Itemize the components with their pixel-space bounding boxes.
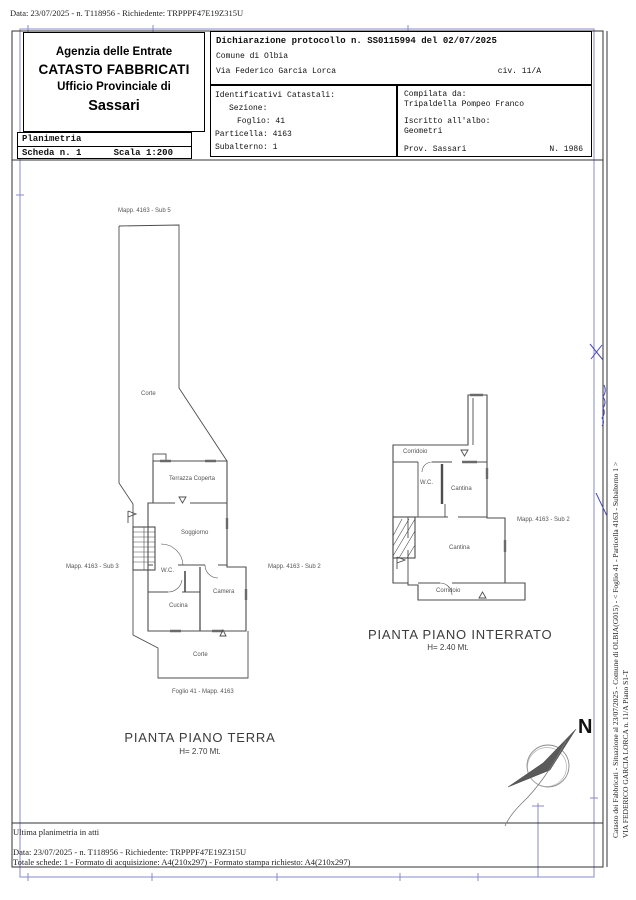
margin-text-cadastre: Catasto dei Fabbricati - Situazione al 2… xyxy=(611,378,620,838)
ground-floor-height: H= 2.70 Mt. xyxy=(120,747,280,756)
scheda-label: Scheda n. 1 xyxy=(22,148,81,158)
basement-height: H= 2.40 Mt. xyxy=(368,643,528,652)
request-info-top: Data: 23/07/2025 - n. T118956 - Richiede… xyxy=(10,8,243,18)
foglio-field: Foglio: 41 xyxy=(211,115,396,128)
compiler-name: Tripaldella Pompeo Franco xyxy=(398,100,591,110)
label-camera: Camera xyxy=(213,589,234,595)
label-corridoio-top: Corridoio xyxy=(403,449,427,455)
prov-label: Prov. Sassari xyxy=(404,145,466,155)
label-mapp-sub3: Mapp. 4163 - Sub 3 xyxy=(66,564,119,570)
label-cucina: Cucina xyxy=(169,603,188,609)
civic-number: civ. 11/A xyxy=(498,67,541,76)
ground-floor-plan xyxy=(119,225,248,678)
planimetria-box: Planimetria Scheda n. 1 Scala 1:200 xyxy=(17,132,192,159)
agency-header-box: Agenzia delle Entrate CATASTO FABBRICATI… xyxy=(23,32,205,132)
cadastral-document-page: Data: 23/07/2025 - n. T118956 - Richiede… xyxy=(0,0,636,900)
label-mapp-sub2-ground: Mapp. 4163 - Sub 2 xyxy=(268,564,321,570)
compiler-box: Compilata da: Tripaldella Pompeo Franco … xyxy=(397,85,592,157)
label-soggiorno: Soggiorno xyxy=(181,530,208,536)
compiler-label: Compilata da: xyxy=(398,86,591,100)
basement-plan xyxy=(393,395,525,600)
registration-number: N. 1986 xyxy=(549,145,583,155)
basement-title: PIANTA PIANO INTERRATO xyxy=(368,627,528,642)
identifiers-box: Identificativi Catastali: Sezione: Fogli… xyxy=(210,85,397,157)
identifiers-title: Identificativi Catastali: xyxy=(211,86,396,102)
north-letter: N xyxy=(578,716,592,739)
declaration-box: Dichiarazione protocollo n. SS0115994 de… xyxy=(210,31,592,85)
label-mapp-sub2-basement: Mapp. 4163 - Sub 2 xyxy=(517,517,570,523)
request-info-bottom: Data: 23/07/2025 - n. T118956 - Richiede… xyxy=(13,847,246,857)
protocol-line: Dichiarazione protocollo n. SS0115994 de… xyxy=(211,32,591,46)
label-cantina-upper: Cantina xyxy=(451,486,472,492)
planimetria-label: Planimetria xyxy=(18,133,191,147)
office-label: Ufficio Provinciale di xyxy=(24,81,204,93)
label-wc-ground: W.C. xyxy=(161,568,174,574)
last-plan-note: Ultima planimetria in atti xyxy=(13,827,99,837)
compass-rose xyxy=(505,729,576,826)
margin-text-address: VIA FEDERICO GARCIA LORCA n. 11/A Piano … xyxy=(621,378,630,838)
albo-value: Geometri xyxy=(398,127,591,137)
catasto-title: CATASTO FABBRICATI xyxy=(24,62,204,77)
office-city: Sassari xyxy=(24,98,204,114)
sezione-field: Sezione: xyxy=(211,102,396,115)
ground-floor-title: PIANTA PIANO TERRA xyxy=(120,730,280,745)
subalterno-field: Subalterno: 1 xyxy=(211,141,396,154)
label-foglio-mapp: Foglio 41 - Mapp. 4163 xyxy=(172,689,234,695)
label-mapp-sub5: Mapp. 4163 - Sub 5 xyxy=(118,208,171,214)
label-cantina-lower: Cantina xyxy=(449,545,470,551)
label-corte-upper: Corte xyxy=(141,391,156,397)
agency-name: Agenzia delle Entrate xyxy=(24,46,204,58)
sheets-format-line: Totale schede: 1 - Formato di acquisizio… xyxy=(13,857,350,867)
street-line: Via Federico Garcia Lorca xyxy=(216,67,336,76)
signature-scribble xyxy=(590,344,607,516)
comune-line: Comune di Olbia xyxy=(211,46,591,61)
label-wc-basement: W.C. xyxy=(420,480,433,486)
label-corridoio-bottom: Corridoio xyxy=(436,588,460,594)
scala-label: Scala 1:200 xyxy=(114,148,173,158)
particella-field: Particella: 4163 xyxy=(211,128,396,141)
label-corte-lower: Corte xyxy=(193,652,208,658)
albo-label: Iscritto all'albo: xyxy=(398,117,591,127)
label-terrazza: Terrazza Coperta xyxy=(169,476,215,482)
